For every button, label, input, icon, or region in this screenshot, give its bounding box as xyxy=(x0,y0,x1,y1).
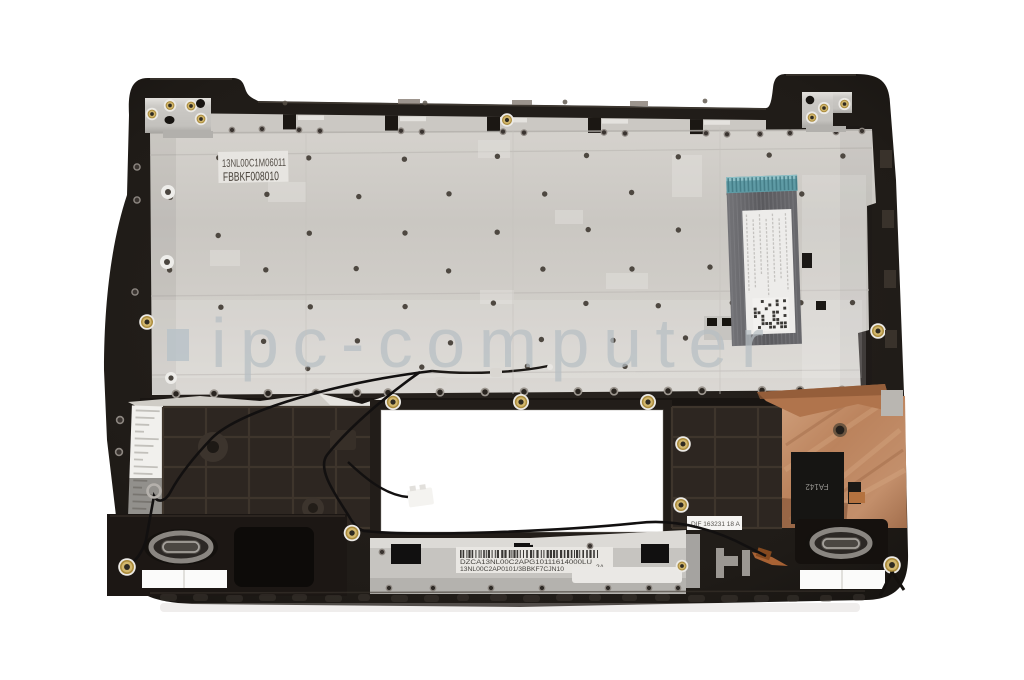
svg-text:13NL00C2AP0101/3BBKF7CJN10: 13NL00C2AP0101/3BBKF7CJN10 xyxy=(460,566,564,573)
svg-text:FA142: FA142 xyxy=(805,482,829,491)
svg-text:FBBKF008010: FBBKF008010 xyxy=(223,169,279,184)
svg-text:13NL00C1M06011: 13NL00C1M06011 xyxy=(222,157,286,170)
svg-text:DZCA13NL00C2APG10111614000LU: DZCA13NL00C2APG10111614000LU xyxy=(460,559,592,566)
